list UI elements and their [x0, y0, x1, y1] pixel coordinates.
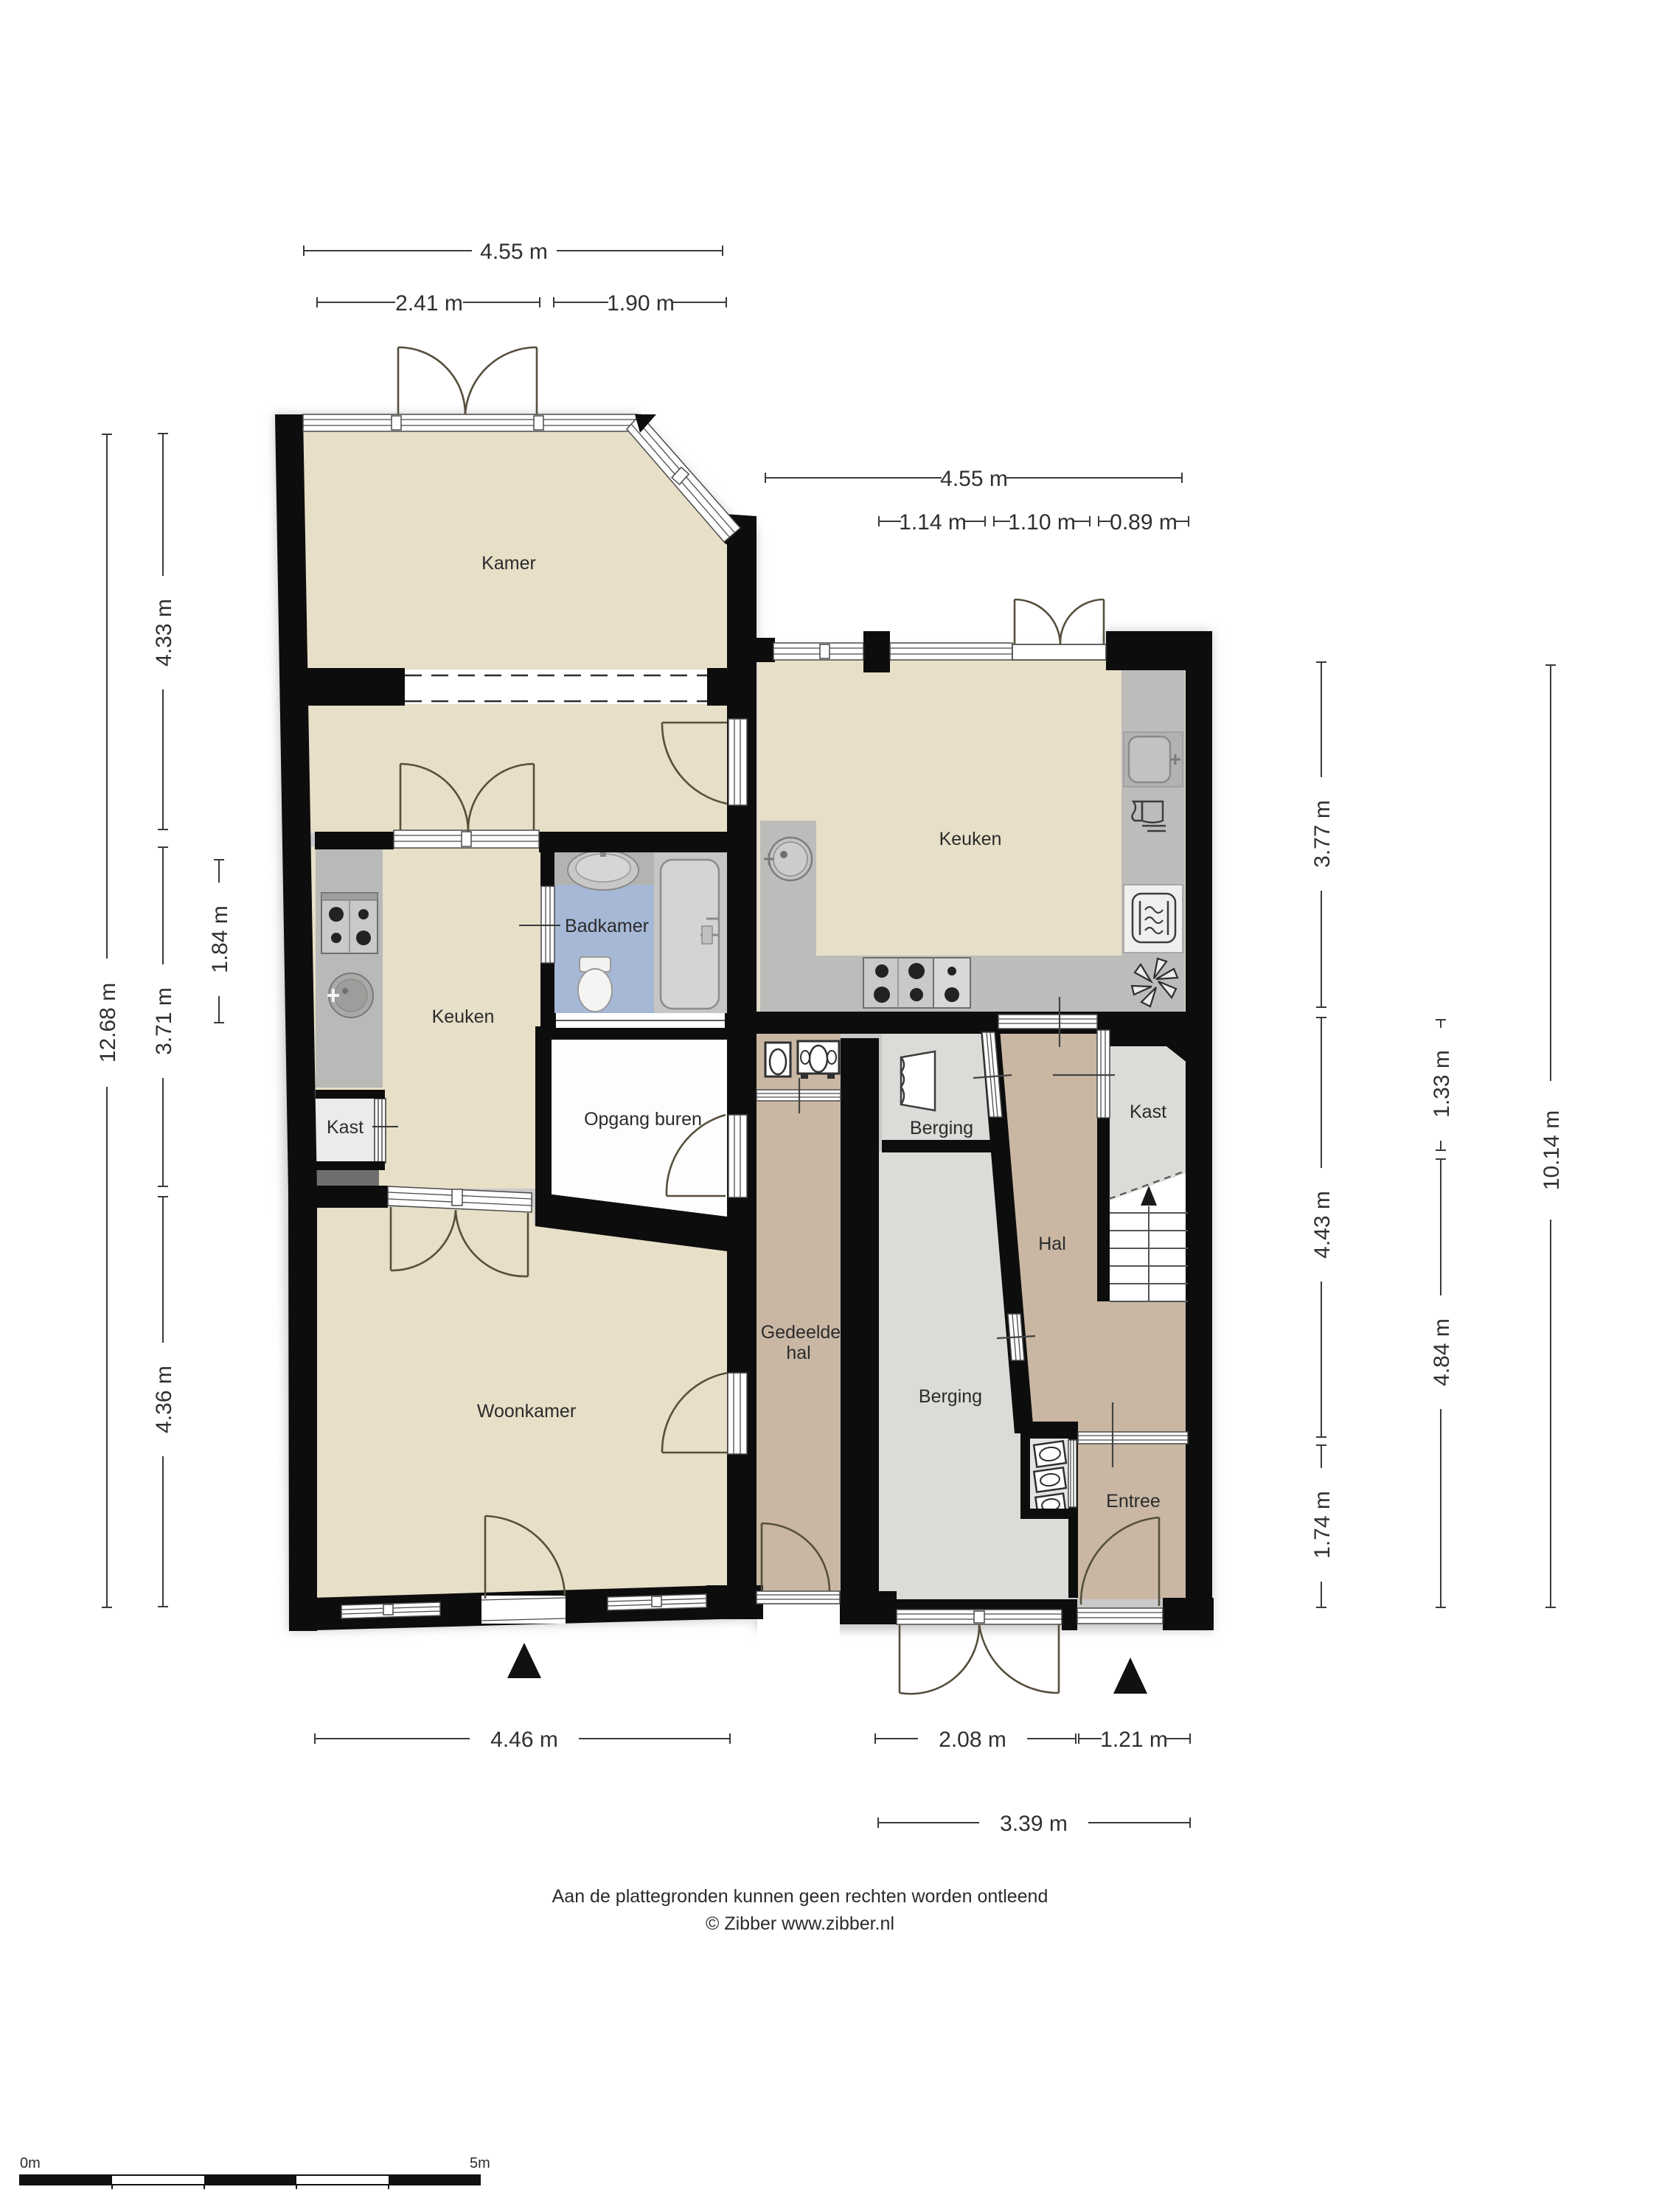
svg-text:1.84 m: 1.84 m — [208, 905, 232, 973]
svg-text:1.90 m: 1.90 m — [607, 291, 675, 316]
svg-text:Berging: Berging — [919, 1386, 982, 1407]
svg-text:Berging: Berging — [910, 1118, 973, 1138]
svg-text:0.89 m: 0.89 m — [1110, 510, 1178, 535]
svg-text:Woonkamer: Woonkamer — [477, 1401, 576, 1422]
svg-text:1.21 m: 1.21 m — [1100, 1728, 1168, 1752]
svg-text:© Zibber www.zibber.nl: © Zibber www.zibber.nl — [706, 1913, 894, 1934]
svg-text:1.33 m: 1.33 m — [1430, 1050, 1454, 1118]
svg-text:4.33 m: 4.33 m — [152, 599, 176, 667]
svg-text:3.71 m: 3.71 m — [152, 987, 176, 1055]
svg-text:1.14 m: 1.14 m — [899, 510, 967, 535]
svg-text:Kast: Kast — [327, 1117, 364, 1138]
svg-text:Aan de plattegronden kunnen ge: Aan de plattegronden kunnen geen rechten… — [552, 1886, 1048, 1907]
svg-text:2.41 m: 2.41 m — [395, 291, 463, 316]
svg-text:3.77 m: 3.77 m — [1310, 800, 1335, 868]
svg-text:Hal: Hal — [1038, 1234, 1066, 1254]
svg-text:2.08 m: 2.08 m — [939, 1728, 1006, 1752]
svg-text:Kamer: Kamer — [481, 553, 536, 574]
svg-text:Kast: Kast — [1130, 1102, 1166, 1122]
svg-text:Badkamer: Badkamer — [565, 916, 649, 936]
svg-text:5m: 5m — [470, 2155, 490, 2171]
svg-text:4.43 m: 4.43 m — [1310, 1191, 1335, 1259]
svg-text:3.39 m: 3.39 m — [1000, 1812, 1068, 1836]
svg-text:4.36 m: 4.36 m — [152, 1366, 176, 1433]
svg-text:1.10 m: 1.10 m — [1008, 510, 1076, 535]
svg-text:Gedeelde: Gedeelde — [761, 1322, 841, 1343]
svg-text:Entree: Entree — [1106, 1491, 1161, 1512]
svg-text:4.84 m: 4.84 m — [1430, 1318, 1454, 1386]
svg-text:0m: 0m — [20, 2155, 41, 2171]
svg-text:Keuken: Keuken — [939, 829, 1002, 849]
svg-text:1.74 m: 1.74 m — [1310, 1491, 1335, 1559]
svg-text:10.14 m: 10.14 m — [1540, 1110, 1564, 1190]
svg-text:4.55 m: 4.55 m — [940, 467, 1008, 491]
svg-text:Opgang buren: Opgang buren — [584, 1109, 702, 1130]
svg-text:Keuken: Keuken — [432, 1006, 495, 1027]
svg-text:hal: hal — [786, 1343, 810, 1363]
svg-text:4.46 m: 4.46 m — [490, 1728, 558, 1752]
svg-text:12.68 m: 12.68 m — [96, 983, 120, 1062]
svg-text:4.55 m: 4.55 m — [480, 240, 548, 264]
